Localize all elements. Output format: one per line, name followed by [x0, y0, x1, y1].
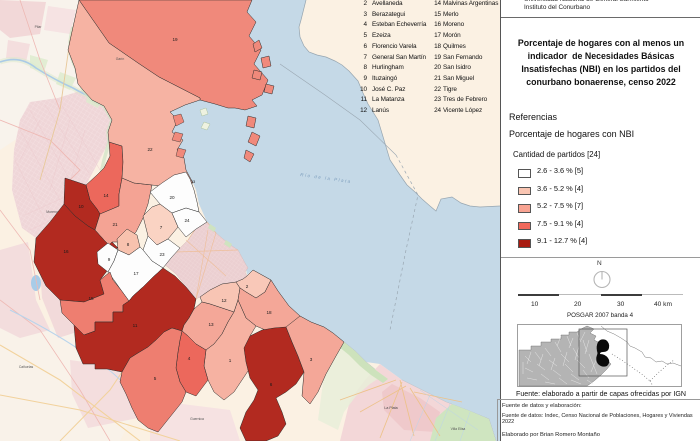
svg-text:2: 2	[246, 284, 249, 289]
svg-text:16: 16	[63, 249, 69, 254]
svg-text:Pilar: Pilar	[35, 25, 43, 29]
svg-text:9: 9	[108, 257, 111, 262]
svg-text:23: 23	[159, 252, 165, 257]
svg-text:Cañuelas: Cañuelas	[19, 365, 34, 369]
svg-text:4: 4	[188, 356, 191, 361]
svg-text:Moreno: Moreno	[46, 210, 58, 214]
svg-text:Villa Elisa: Villa Elisa	[451, 427, 466, 431]
svg-text:8: 8	[127, 242, 130, 247]
svg-text:5: 5	[154, 376, 157, 381]
svg-text:21: 21	[112, 222, 118, 227]
svg-text:12: 12	[221, 298, 227, 303]
svg-text:Garín: Garín	[116, 57, 125, 61]
svg-text:3: 3	[310, 357, 313, 362]
svg-text:La Plata: La Plata	[384, 406, 397, 410]
svg-text:1: 1	[229, 358, 232, 363]
svg-text:20: 20	[169, 195, 175, 200]
svg-text:11: 11	[133, 323, 138, 328]
svg-text:6: 6	[270, 382, 273, 387]
svg-text:22: 22	[147, 147, 153, 152]
svg-text:14: 14	[103, 193, 109, 198]
svg-text:Guernica: Guernica	[190, 417, 204, 421]
svg-text:7: 7	[160, 225, 163, 230]
svg-text:24: 24	[184, 218, 190, 223]
svg-text:17: 17	[133, 271, 139, 276]
svg-text:15: 15	[88, 296, 94, 301]
svg-text:10: 10	[78, 204, 84, 209]
svg-text:19: 19	[172, 37, 178, 42]
svg-text:18: 18	[266, 310, 272, 315]
svg-text:13: 13	[208, 322, 214, 327]
svg-text:33: 33	[191, 179, 196, 184]
